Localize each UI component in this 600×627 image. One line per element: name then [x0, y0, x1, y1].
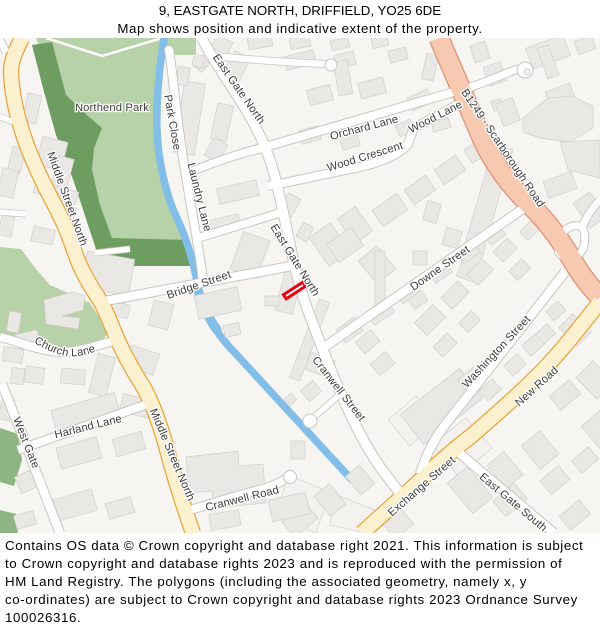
- svg-text:Northend Park: Northend Park: [75, 102, 149, 114]
